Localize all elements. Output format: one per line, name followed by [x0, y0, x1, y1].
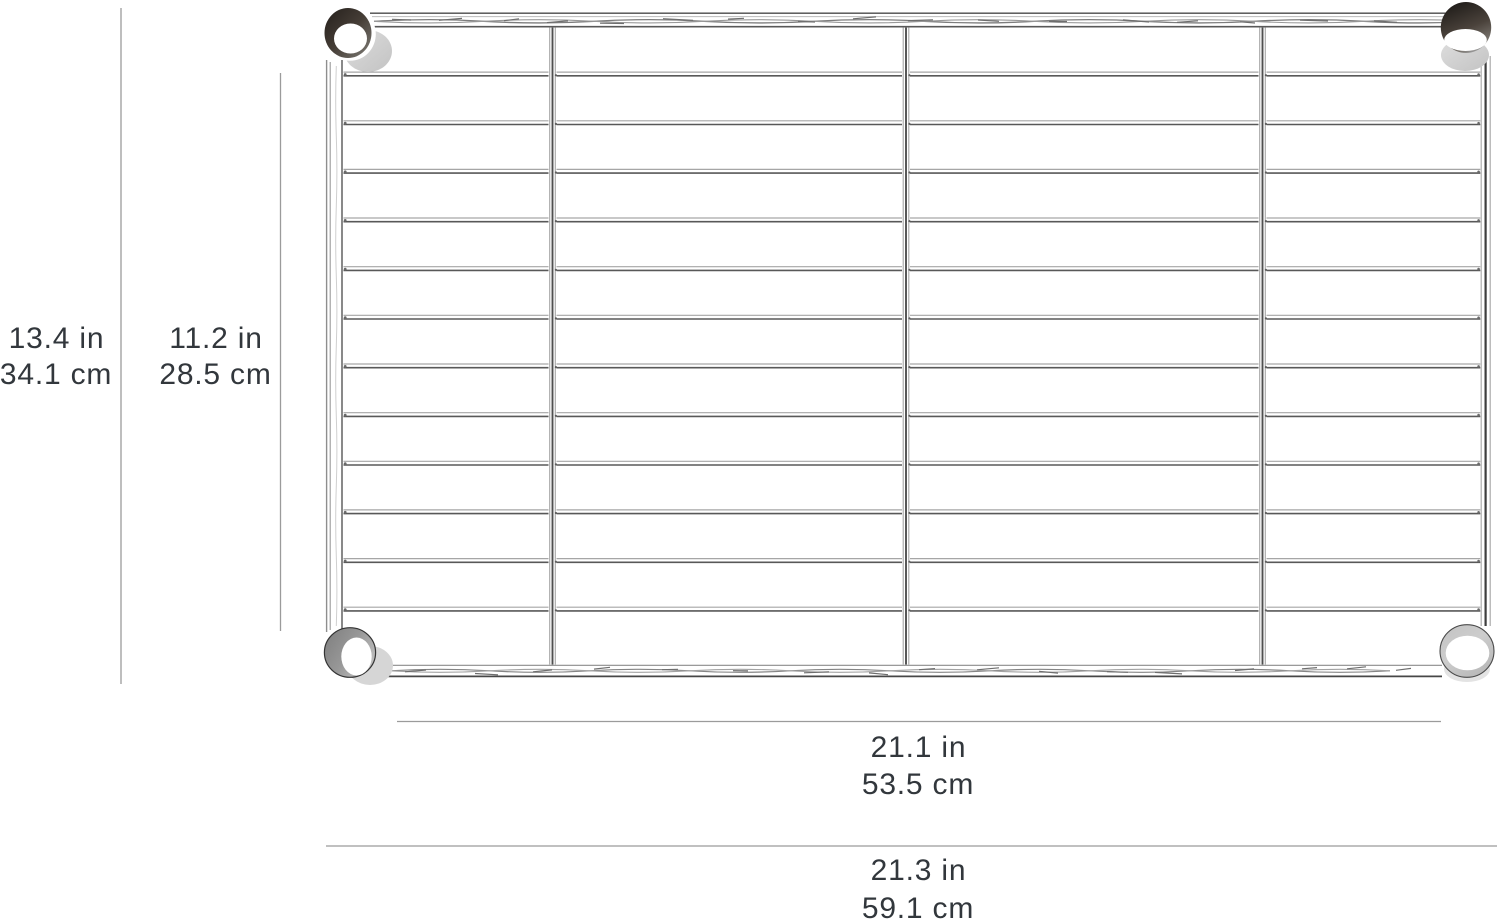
svg-text:11.2 in: 11.2 in — [169, 322, 262, 355]
svg-text:34.1 cm: 34.1 cm — [0, 358, 112, 391]
svg-text:21.1 in: 21.1 in — [871, 731, 967, 764]
svg-text:13.4 in: 13.4 in — [9, 322, 105, 355]
svg-text:21.3 in: 21.3 in — [871, 854, 967, 887]
svg-text:53.5 cm: 53.5 cm — [862, 768, 974, 801]
svg-text:28.5 cm: 28.5 cm — [159, 358, 271, 391]
svg-text:59.1 cm: 59.1 cm — [862, 892, 974, 920]
